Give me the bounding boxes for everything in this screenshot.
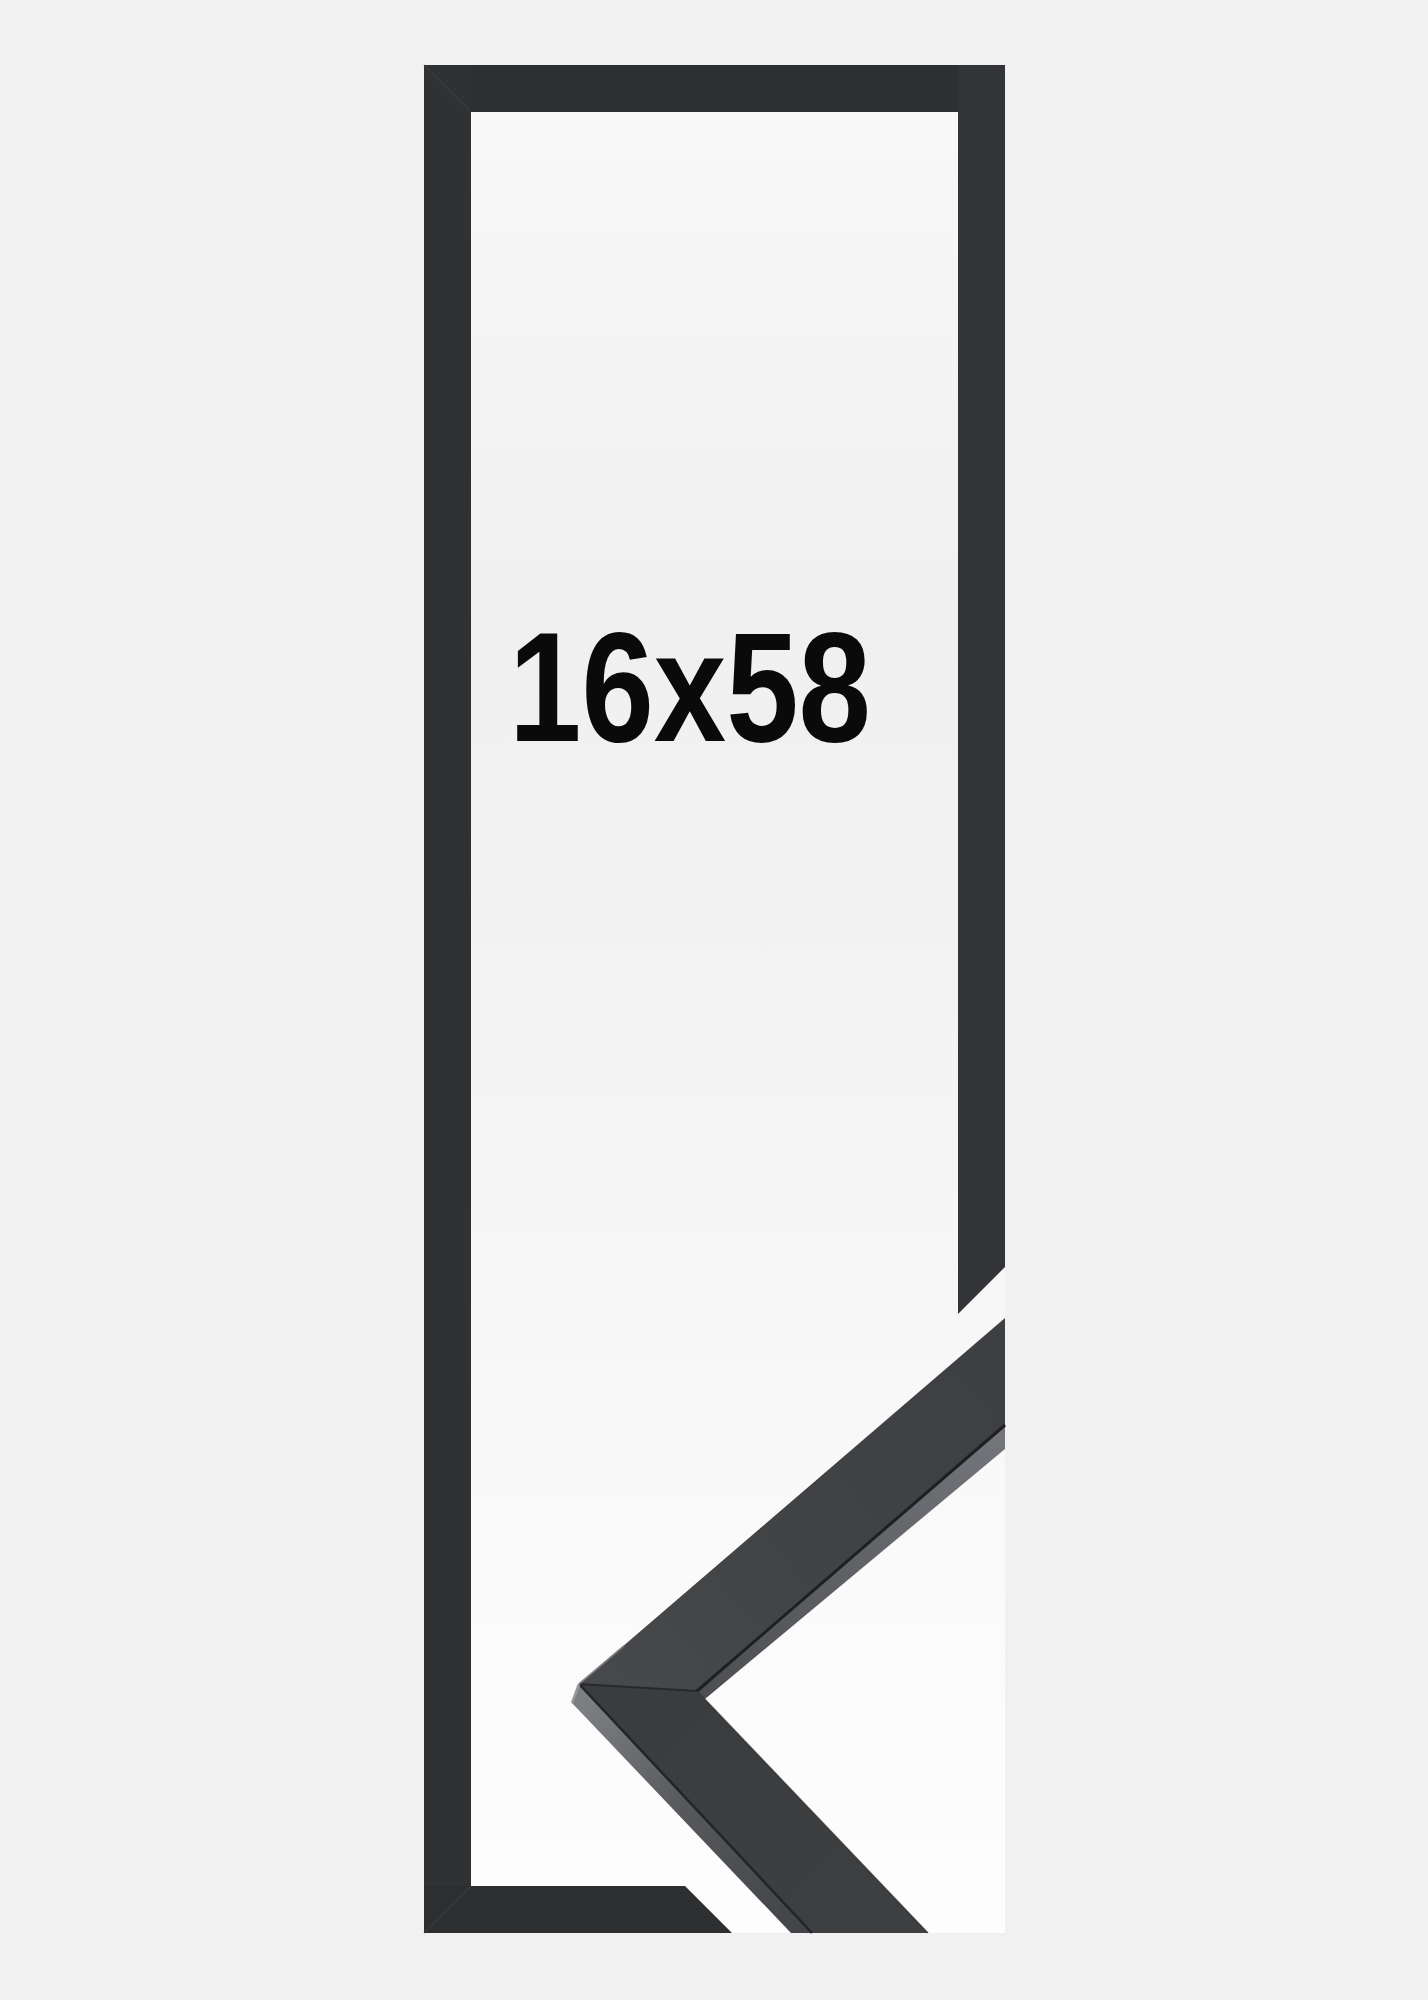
- size-label: 16x58: [509, 600, 871, 773]
- size-label-group: 16x58: [509, 600, 871, 773]
- product-image-stage: 16x58: [0, 0, 1428, 2000]
- frame-product-image: 16x58: [0, 0, 1428, 2000]
- frame-right-bar: [958, 65, 1005, 1314]
- frame-left-bar: [424, 65, 471, 1933]
- frame-bottom-bar: [424, 1886, 732, 1933]
- frame-top-bar: [424, 65, 1005, 112]
